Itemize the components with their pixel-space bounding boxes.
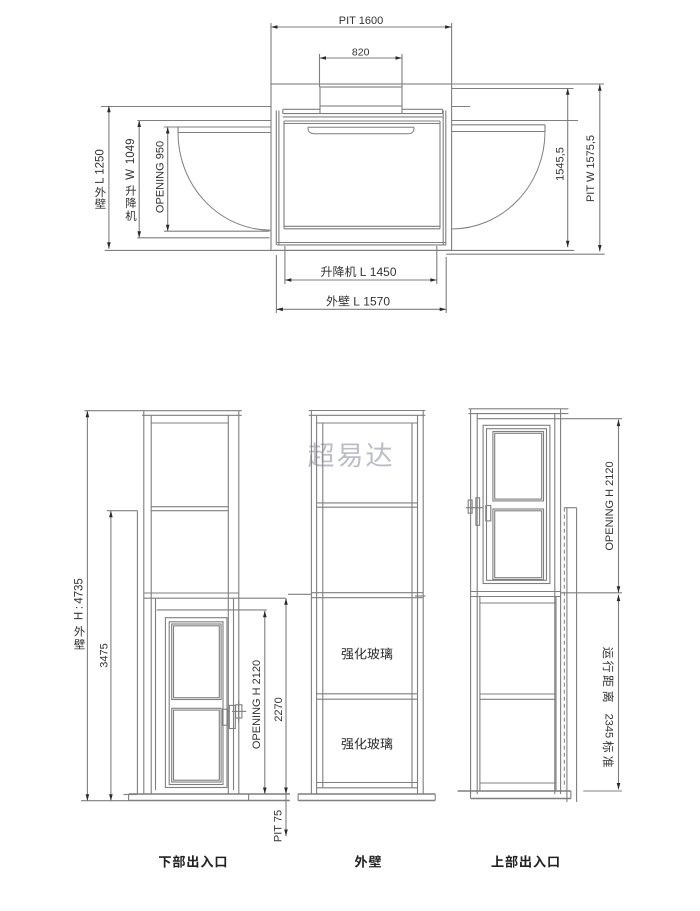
svg-text:H: H [74,612,86,620]
svg-text:1450: 1450 [370,265,397,279]
svg-text:1250: 1250 [94,149,106,175]
svg-text:L: L [353,295,360,309]
svg-text:1545,5: 1545,5 [554,147,566,181]
svg-text:L: L [360,265,367,279]
svg-text:820: 820 [352,47,370,59]
svg-text:OPENING H 2120: OPENING H 2120 [251,660,263,749]
svg-text:W: W [125,169,137,180]
svg-text::: : [74,606,86,609]
svg-text:2345: 2345 [603,714,615,738]
svg-text:OPENING H 2120: OPENING H 2120 [604,461,616,550]
svg-text:OPENING 950: OPENING 950 [155,141,167,213]
svg-text:PIT 1600: PIT 1600 [339,15,383,27]
svg-text:1049: 1049 [125,139,137,165]
svg-text:L: L [94,177,106,184]
svg-text:3475: 3475 [98,643,110,667]
svg-text:PIT 75: PIT 75 [273,810,285,842]
svg-text:2270: 2270 [273,697,285,721]
svg-text:4735: 4735 [74,578,86,604]
svg-text:PIT W 1575,5: PIT W 1575,5 [585,135,597,202]
svg-text:1570: 1570 [363,295,390,309]
